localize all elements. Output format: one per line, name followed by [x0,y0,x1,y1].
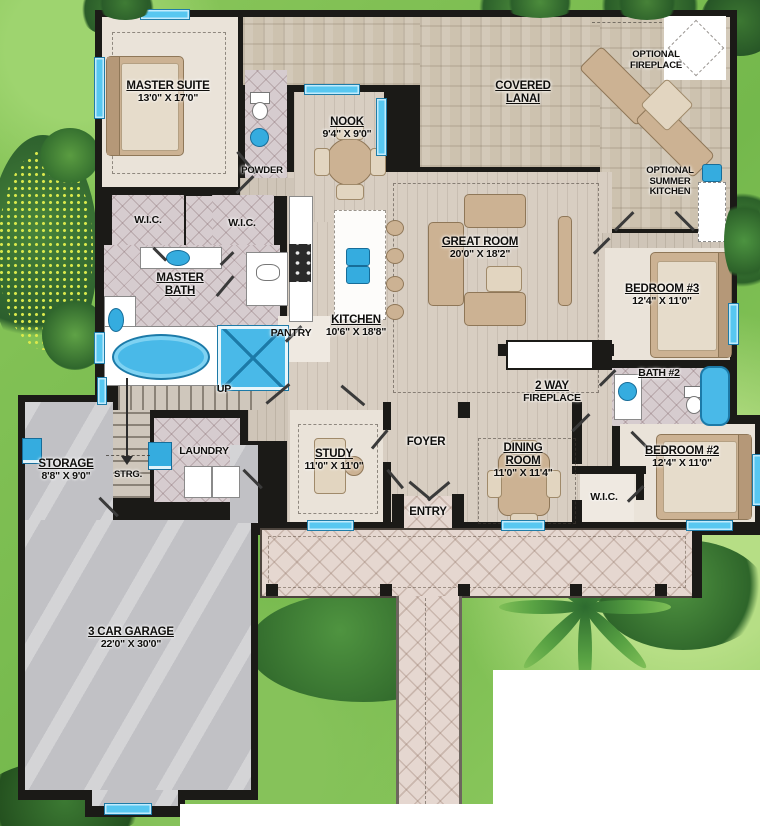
window-garage-bottom [104,803,152,815]
window-bed2-right [752,454,760,506]
label-master-bath: MASTER BATH [142,272,218,298]
tub-icon [112,334,210,380]
bath2-sink-icon [618,382,637,401]
label-two-way-fireplace: 2 WAY FIREPLACE [512,380,592,405]
label-up: UP [208,384,240,396]
label-garage: 3 CAR GARAGE 22'0" X 30'0" [68,626,194,651]
room-dims: 22'0" X 30'0" [68,639,194,651]
island-sink-icon [346,248,370,266]
laundry-appliance-2 [212,466,240,498]
window-study-front [307,520,354,531]
walkway-center-line [425,598,426,804]
bath2-tub-icon [700,366,730,426]
floor-plan: MASTER SUITE 13'0" X 17'0" POWDER NOOK 9… [0,0,760,826]
window-nook-top [304,84,360,95]
room-dims: 8'8" X 9'0" [26,471,106,483]
island-sink-icon-2 [346,266,370,284]
stool [386,276,404,292]
nook-chair [314,148,330,176]
label-strg: STRG. [110,470,146,481]
room-name: STORAGE [26,458,106,471]
room-dims: 13'0" X 17'0" [110,93,226,105]
toilet-icon-powder [252,102,268,120]
optional-fireplace-dashed-line [592,22,662,23]
stairs-arrow-line [126,378,128,458]
master-bed-mattress [121,63,179,151]
room-dims: 20'0" X 18'2" [420,249,540,261]
bed2-headboard [738,435,751,519]
label-covered-lanai: COVERED LANAI [478,80,568,106]
room-name: LAUNDRY [166,446,242,458]
room-dims: 9'4" X 9'0" [306,129,388,141]
room-dims: 11'0" X 11'4" [488,468,558,480]
great-room-sofa-top [464,194,526,228]
room-name: 2 WAY [512,380,592,393]
toilet-icon-master [256,264,280,281]
bath-sink-icon-2 [108,308,124,332]
room-name: 3 CAR GARAGE [68,626,194,639]
room-name: BATH #2 [638,368,680,380]
window-stairs-left [97,377,107,405]
bush-left-small [40,128,100,183]
foliage-overhang-4 [724,196,760,286]
label-optional-summer-kitchen: OPTIONAL SUMMER KITCHEN [638,166,702,198]
room-dims: 12'4" X 11'0" [628,458,736,470]
room-name: GREAT ROOM [420,236,540,249]
label-powder: POWDER [230,166,294,177]
two-way-fireplace-box [506,340,596,370]
label-wic-master-left: W.I.C. [120,215,176,227]
label-great-room: GREAT ROOM 20'0" X 18'2" [420,236,540,261]
label-study: STUDY 11'0" X 11'0" [294,448,374,473]
two-way-fireplace-cap [592,340,612,370]
window-master-left [94,57,105,119]
label-master-suite: MASTER SUITE 13'0" X 17'0" [110,80,226,105]
room-name: STRG. [110,470,146,481]
laundry-appliance-1 [184,466,212,498]
porch-column-5 [655,584,667,596]
room-dims: 11'0" X 11'0" [294,461,374,473]
summer-kitchen-counter [698,182,726,242]
page-whitespace-right [493,670,760,826]
label-kitchen: KITCHEN 10'6" X 18'8" [312,314,400,339]
label-foyer: FOYER [396,436,456,449]
label-dining-room: DINING ROOM 11'0" X 11'4" [488,442,558,480]
label-bath-2: BATH #2 [638,368,680,380]
room-name: NOOK [306,116,388,129]
wall-foyer-dining-stub [458,402,470,418]
entry-walkway [396,596,462,806]
nook-table [326,138,374,186]
understair-dashed [106,455,150,456]
label-bedroom-2: BEDROOM #2 12'4" X 11'0" [628,445,736,470]
floor-garage [25,520,251,790]
room-name: BEDROOM #3 [608,283,716,296]
room-name: BEDROOM #2 [628,445,736,458]
porch-column-1 [266,584,278,596]
label-wic-bedroom-2: W.I.C. [578,492,630,504]
floor-powder [245,70,287,178]
room-name: MASTER SUITE [110,80,226,93]
nook-chair [336,184,364,200]
wall-study-right-upper [383,402,391,430]
room-dims: 10'6" X 18'8" [312,327,400,339]
stove-icon [289,244,311,282]
window-dining-front [501,520,545,531]
room-dims: 12'4" X 11'0" [608,296,716,308]
great-room-console [558,216,572,306]
room-name: UP [208,384,240,396]
great-room-sofa-bottom [464,292,526,326]
window-bed3-right [728,303,739,345]
page-whitespace-bottom [180,804,760,826]
stairs-arrow-head [121,456,133,465]
porch-column-3 [458,584,470,596]
master-bed-headboard [107,57,120,155]
room-name: KITCHEN [312,314,400,327]
label-bedroom-3: BEDROOM #3 12'4" X 11'0" [608,283,716,308]
room-name: COVERED LANAI [478,80,568,106]
room-name: FOYER [396,436,456,449]
porch-end-wall [692,528,702,598]
powder-sink-icon [250,128,269,147]
room-name: STUDY [294,448,374,461]
porch-column-4 [570,584,582,596]
room-name-2: FIREPLACE [512,393,592,405]
label-storage: STORAGE 8'8" X 9'0" [26,458,106,483]
label-optional-fireplace: OPTIONAL FIREPLACE [618,50,694,71]
label-entry: ENTRY [398,506,458,519]
room-name: MASTER BATH [142,272,218,298]
room-name: ENTRY [398,506,458,519]
room-name: DINING ROOM [488,442,558,468]
room-name: POWDER [230,166,294,177]
stool [386,220,404,236]
room-name: W.I.C. [578,492,630,504]
window-bed2-front [686,520,733,531]
summer-kitchen-sink-icon [702,164,722,182]
stool [386,248,404,264]
room-name: W.I.C. [214,218,270,230]
bath-sink-icon [166,250,190,266]
room-name: OPTIONAL FIREPLACE [618,50,694,71]
window-bath-left [94,332,105,364]
porch-column-2 [380,584,392,596]
master-bed [106,56,184,156]
label-laundry: LAUNDRY [166,446,242,458]
porch-dashed-line [268,536,686,588]
great-room-sofa-left [428,222,464,306]
label-nook: NOOK 9'4" X 9'0" [306,116,388,141]
room-name: W.I.C. [120,215,176,227]
great-room-coffee-table [486,266,522,292]
label-wic-master-right: W.I.C. [214,218,270,230]
room-name: OPTIONAL SUMMER KITCHEN [638,166,702,198]
